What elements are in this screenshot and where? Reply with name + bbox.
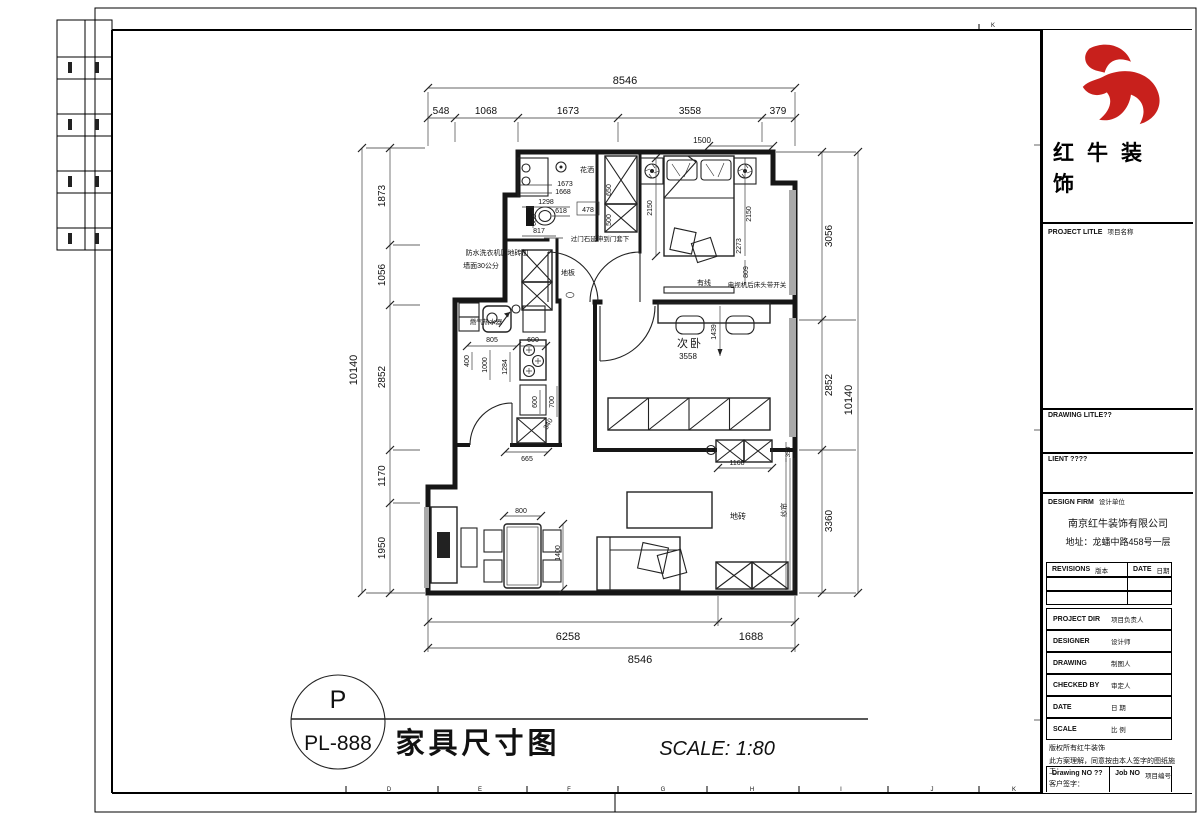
dim: 650: [606, 184, 613, 196]
dim-top-seg: 3558: [679, 106, 702, 117]
wardrobe: [608, 398, 770, 430]
dim-top-total: 8546: [613, 75, 637, 87]
designer-row: DESIGNER设计师: [1046, 630, 1172, 652]
ruler-letter: G: [661, 787, 666, 793]
dim: 350: [785, 446, 792, 457]
dim: 700: [549, 396, 556, 408]
drawing-row: DRAWING制图人: [1046, 652, 1172, 674]
ruler-letter: K: [1012, 787, 1016, 793]
ruler-letter: E: [478, 787, 482, 793]
dim: 1298: [538, 199, 554, 206]
chair: [676, 316, 704, 334]
date-row: DATE日 期: [1046, 696, 1172, 718]
dim: 2273: [736, 238, 743, 254]
bay-cabinets: [707, 440, 773, 462]
master-bedroom: [641, 156, 756, 293]
chair: [726, 316, 754, 334]
cable-label: 有线: [697, 278, 711, 287]
bottom-dimension-chain: 6258 1688 8546: [424, 596, 799, 666]
dim-right-seg: 3056: [824, 224, 835, 247]
tile-label: 地砖: [730, 511, 746, 521]
checked-by-row: CHECKED BY审定人: [1046, 674, 1172, 696]
door-stone-note: 过门石延伸到门套下: [571, 234, 630, 243]
brand-name: 红牛装饰: [1053, 138, 1185, 200]
living-room: [431, 492, 788, 590]
dim-top-seg: 379: [770, 106, 787, 117]
dim: 1400: [555, 545, 562, 561]
balcony-cabinets: [716, 562, 788, 589]
dim: 600: [527, 337, 539, 344]
dining-set: [484, 524, 561, 588]
top-dimension-chain: 8546 548 1068 1673 3558 379 1500: [424, 75, 799, 150]
ruler-letter: D: [387, 787, 392, 793]
dim: 2150: [647, 200, 654, 216]
room-name: 次卧: [677, 336, 703, 350]
revisions-header-row: REVISIONS版本 DATE日期: [1046, 562, 1172, 577]
drawing-no-label: Drawing NO ??: [1047, 767, 1109, 792]
dim-left-total: 10140: [348, 355, 360, 386]
dim: 2150: [746, 206, 753, 222]
dim: 400: [464, 355, 471, 367]
dim: 817: [533, 228, 545, 235]
dim: 665: [521, 456, 533, 463]
drawing-no-row: Drawing NO ?? Job NO项目编号: [1046, 766, 1172, 792]
floor-label: 地板: [561, 268, 575, 277]
tv-note: 电视机后床头带开关: [728, 280, 787, 289]
bull-swoosh-icon: [1065, 42, 1175, 134]
dim-right-total: 10140: [843, 385, 855, 416]
second-bedroom: [608, 303, 772, 462]
dim-left-seg: 1873: [377, 184, 388, 207]
dim: 800: [515, 508, 527, 515]
dim: 809: [743, 266, 750, 278]
revision-row-empty: [1046, 591, 1172, 605]
title-block: 红牛装饰 PROJECT LITLE项目名称 DRAWING LITLE?? L…: [1040, 30, 1193, 793]
design-firm-label: DESIGN FIRM设计单位: [1048, 496, 1125, 506]
sheet-border: [95, 8, 1196, 812]
right-dimension-chain: 3056 2852 3360 10140: [776, 148, 862, 597]
dim: 600: [532, 396, 539, 408]
ruler-letter: H: [750, 787, 754, 793]
master-bedroom-annotations: 2150 2150 2273 809 有线 电视机后床头带开关: [647, 154, 787, 289]
dim: 1673: [557, 181, 573, 188]
dim: 805: [486, 337, 498, 344]
revision-row-empty: [1046, 577, 1172, 591]
job-no-label: Job NO项目编号: [1109, 767, 1171, 792]
dim: 1439: [711, 324, 718, 340]
sofa: [597, 537, 687, 590]
project-title-label: PROJECT LITLE项目名称: [1048, 226, 1133, 236]
fold-strip: [57, 20, 112, 250]
scale-text: SCALE: 1:80: [659, 738, 775, 760]
dim-bottom-seg: 1688: [739, 631, 763, 643]
shower-symbol: [556, 162, 566, 172]
drawing-title: 家具尺寸图: [395, 726, 560, 760]
shower-label: 花洒: [580, 165, 594, 174]
ruler-letter: F: [567, 787, 571, 793]
dim-left-seg: 1056: [377, 263, 388, 286]
dim-right-seg: 2852: [824, 373, 835, 396]
dim-top-seg: 1068: [475, 106, 498, 117]
heater-label: 燃气热水器: [470, 317, 503, 326]
client-label: LIENT ????: [1048, 456, 1087, 463]
dim: 680: [531, 214, 538, 226]
dim: 1284: [502, 359, 509, 375]
laundry-note: 墙面30公分: [463, 261, 499, 270]
doors: [470, 252, 655, 445]
dim-1500: 1500: [693, 136, 711, 145]
floor-plan-drawing: D E F G H I J K K: [0, 0, 1200, 824]
scale-row: SCALE比 例: [1046, 718, 1172, 740]
dim-top-seg: 1673: [557, 106, 580, 117]
tv-cabinet: [431, 507, 477, 583]
dim-top-seg: 548: [433, 106, 450, 117]
dim-left-seg: 1170: [377, 465, 388, 487]
ruler-letter: J: [931, 787, 934, 793]
tv-console: [664, 287, 734, 293]
footer: P PL-888 家具尺寸图 SCALE: 1:80: [291, 675, 868, 769]
dim: 1000: [482, 357, 489, 373]
revisions-label: REVISIONS版本: [1047, 563, 1127, 576]
tag-number: PL-888: [304, 732, 372, 755]
dim: 3558: [679, 352, 697, 361]
company-name: 南京红牛装饰有限公司: [1043, 515, 1193, 530]
dim-left-seg: 1950: [377, 536, 388, 559]
kitchen-annotations: 燃气热水器 805 600 400 1000 1284 600 700 340 …: [463, 317, 557, 463]
left-dimension-chain: 10140 1873 1056 2852 1170 1950: [348, 144, 425, 597]
dim: 500: [606, 214, 613, 226]
dim-bottom-total: 8546: [628, 654, 652, 666]
dim: 478: [582, 207, 594, 214]
bed: [664, 156, 734, 263]
dim-left-seg: 2852: [377, 365, 388, 388]
dim-bottom-seg: 6258: [556, 631, 580, 643]
date-col-label: DATE日期: [1127, 563, 1171, 576]
laundry-note: 防水洗衣机区地砖加: [466, 248, 529, 257]
dim-right-seg: 3360: [824, 509, 835, 532]
project-dir-row: PROJECT DIR项目负责人: [1046, 608, 1172, 630]
tag-letter: P: [330, 686, 347, 714]
curtain-label: 纱帘: [779, 503, 788, 517]
drawing-sheet: D E F G H I J K K: [0, 0, 1200, 824]
top-ruler-letter: K: [991, 23, 995, 29]
drawing-title-label: DRAWING LITLE??: [1048, 412, 1112, 419]
dim: 1168: [729, 460, 744, 467]
company-address: 地址：龙蟠中路458号一层: [1043, 535, 1193, 548]
coffee-table: [627, 492, 712, 528]
dim: 618: [555, 208, 567, 215]
dim: 1668: [555, 189, 571, 196]
